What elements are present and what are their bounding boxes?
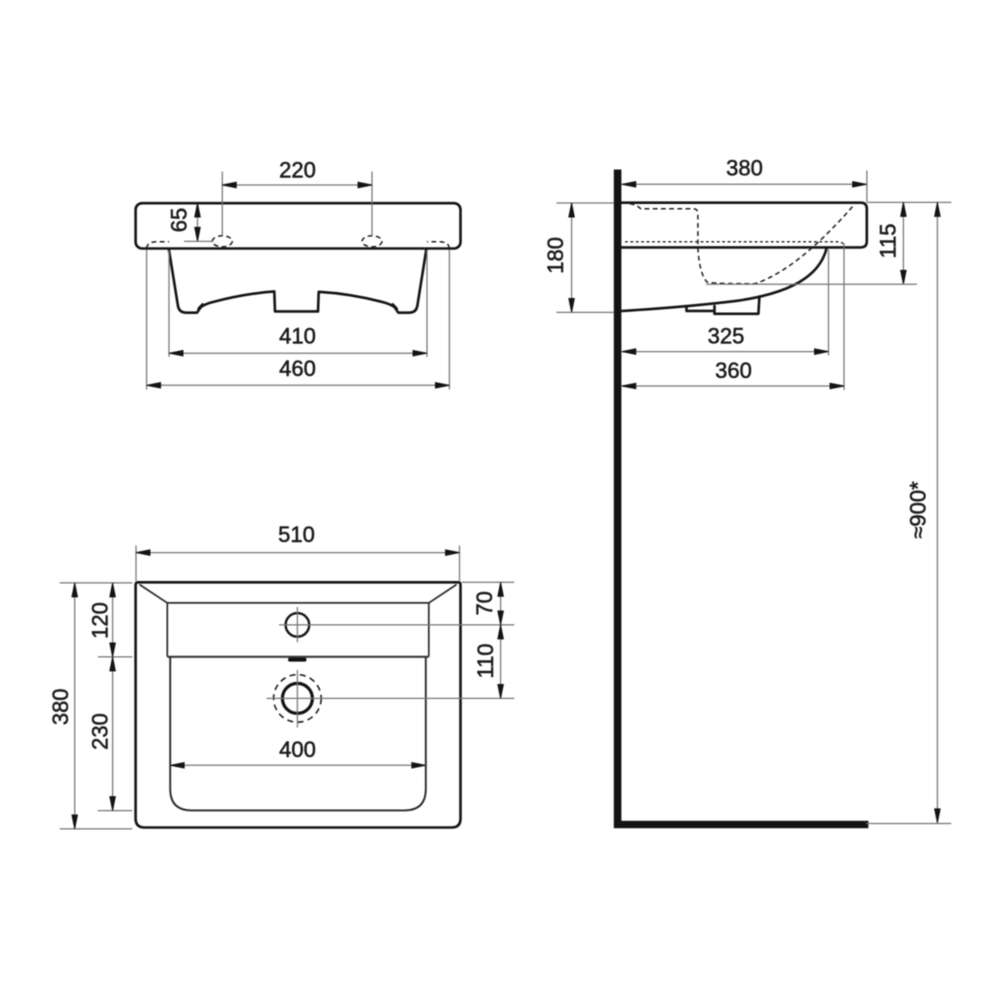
svg-text:220: 220 xyxy=(279,158,316,183)
svg-text:65: 65 xyxy=(167,208,192,232)
svg-text:325: 325 xyxy=(708,324,745,349)
svg-text:110: 110 xyxy=(473,643,498,678)
svg-text:180: 180 xyxy=(543,237,568,274)
svg-text:70: 70 xyxy=(472,591,497,615)
svg-text:510: 510 xyxy=(278,522,315,547)
svg-text:460: 460 xyxy=(279,356,316,381)
svg-text:120: 120 xyxy=(87,602,112,639)
svg-text:115: 115 xyxy=(876,223,901,258)
svg-text:410: 410 xyxy=(279,324,316,349)
svg-text:400: 400 xyxy=(279,737,316,762)
svg-text:≈900*: ≈900* xyxy=(905,481,930,539)
svg-text:380: 380 xyxy=(48,688,73,725)
svg-text:360: 360 xyxy=(715,358,752,383)
svg-text:380: 380 xyxy=(726,156,763,181)
svg-text:230: 230 xyxy=(87,713,112,750)
